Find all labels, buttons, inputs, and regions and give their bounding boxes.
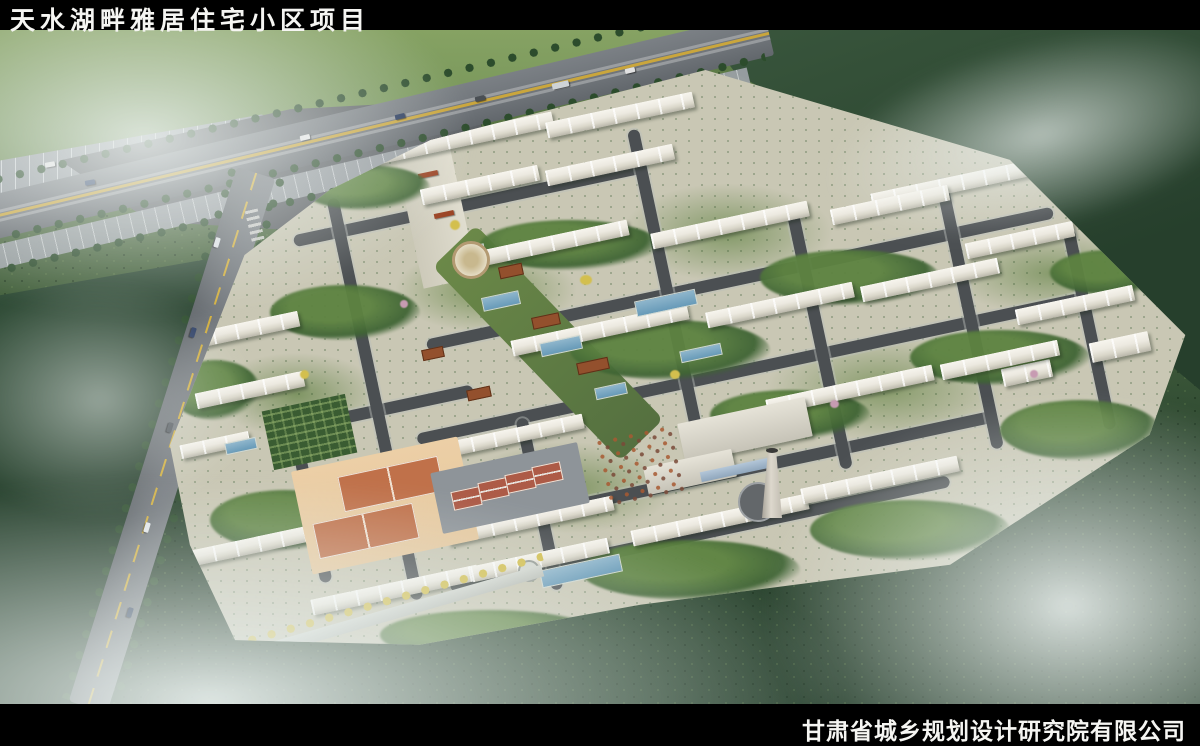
aerial-render	[0, 30, 1200, 704]
chimney-top	[766, 448, 778, 453]
rendering-poster: 天水湖畔雅居住宅小区项目	[0, 0, 1200, 746]
autumn-tree	[300, 370, 309, 379]
project-title: 天水湖畔雅居住宅小区项目	[10, 1, 370, 37]
blossom-tree	[400, 300, 408, 308]
autumn-tree	[450, 220, 460, 230]
circular-plaza	[452, 241, 490, 279]
blossom-tree	[1030, 370, 1038, 378]
company-name: 甘肃省城乡规划设计研究院有限公司	[802, 712, 1186, 746]
credit-bar: 甘肃省城乡规划设计研究院有限公司	[0, 704, 1200, 746]
title-bar: 天水湖畔雅居住宅小区项目	[0, 0, 1200, 30]
blossom-tree	[830, 400, 839, 408]
autumn-tree	[580, 275, 592, 285]
autumn-tree	[670, 370, 680, 379]
